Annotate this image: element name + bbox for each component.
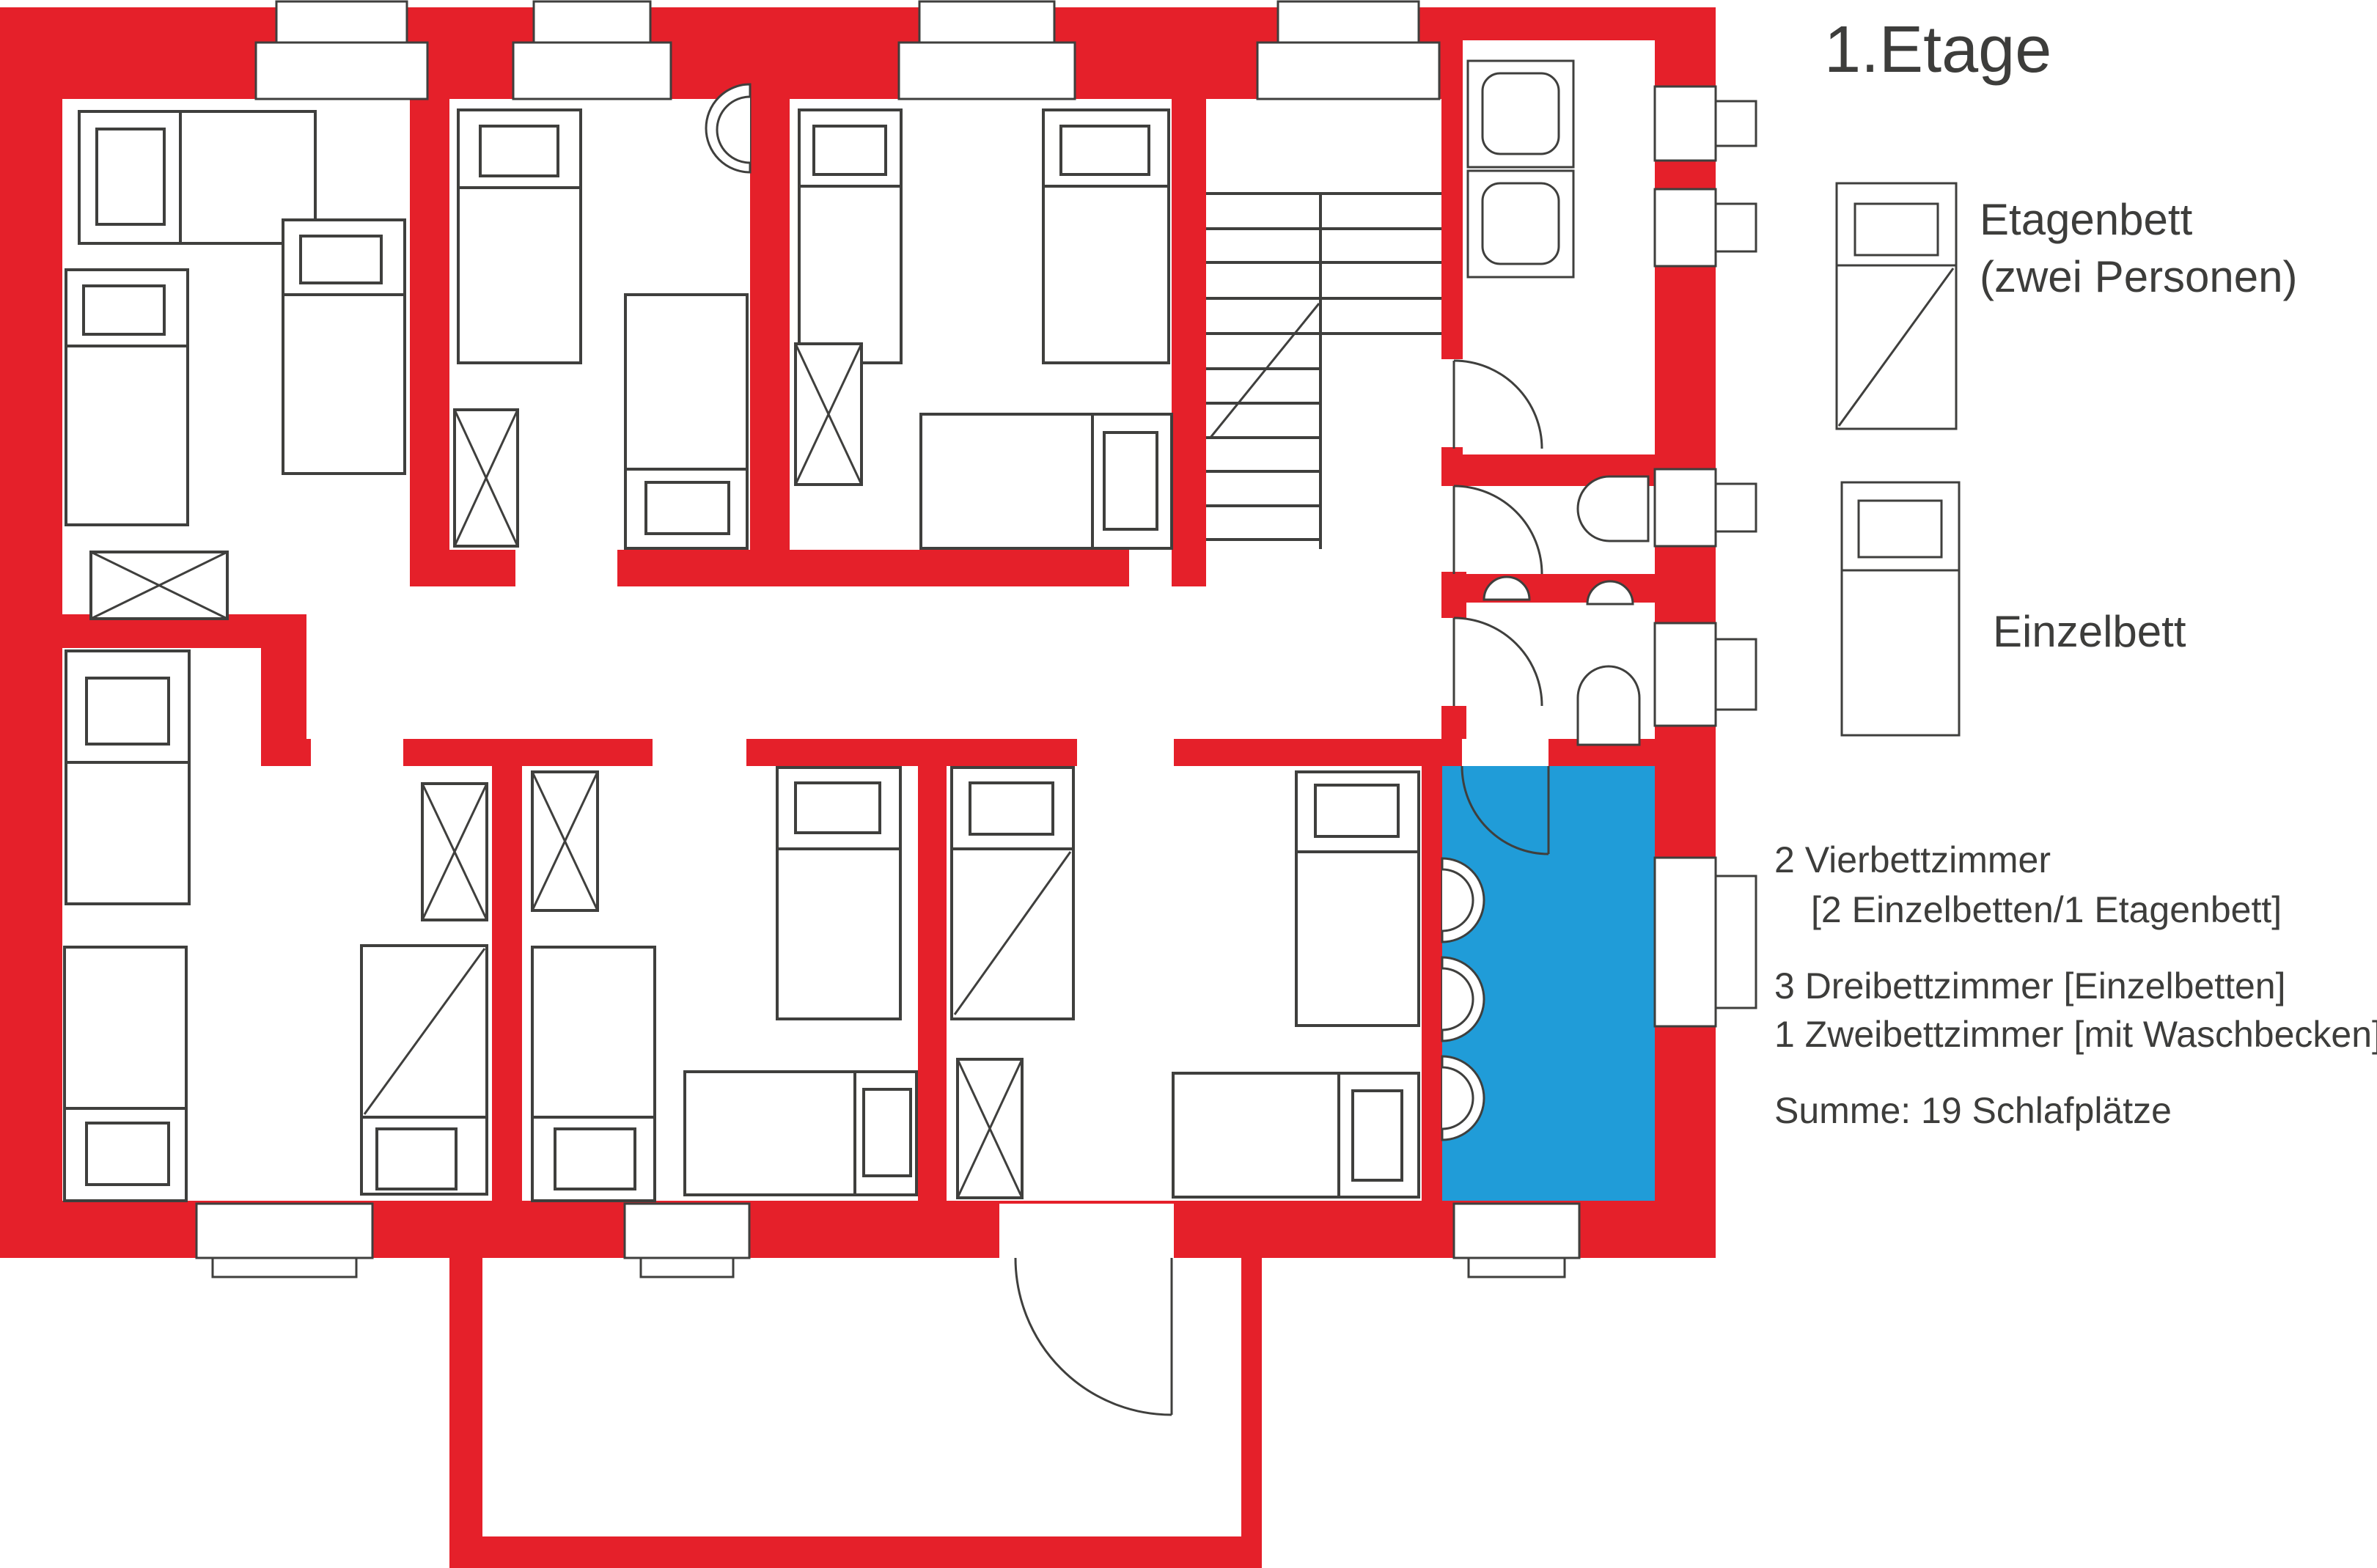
bunk-bed-icon: [361, 946, 487, 1194]
page-title: 1.Etage: [1824, 13, 2051, 87]
extension-right-wall: [1241, 1258, 1262, 1568]
single-bed-icon: [921, 414, 1172, 548]
door-opening-wc2: [1441, 618, 1469, 706]
single-bed-icon: [1842, 482, 1959, 735]
extension-bottom-wall: [449, 1536, 1262, 1568]
floor-plan: 1.Etage Etagenbett (zwei Personen) Einze…: [0, 0, 2377, 1568]
wardrobe-icon: [422, 784, 487, 920]
window-wc1: [1655, 469, 1756, 546]
floor-plan-page: 1.Etage Etagenbett (zwei Personen) Einze…: [0, 0, 2377, 1568]
bunk-bed-icon: [952, 768, 1073, 1019]
legend-etagenbett-label: Etagenbett: [1980, 195, 2193, 244]
info-zweibettzimmer: 1 Zweibettzimmer [mit Waschbecken]: [1774, 1014, 2377, 1055]
window-sinkroom-1: [1655, 87, 1756, 161]
single-bed-icon: [532, 947, 655, 1201]
toilet-icon: [1578, 666, 1639, 745]
extension-left-wall: [449, 1258, 482, 1568]
wardrobe-icon: [532, 772, 598, 910]
window-washroom: [1655, 858, 1756, 1026]
info-summe: Summe: 19 Schlafplätze: [1774, 1090, 2172, 1131]
single-bed-icon: [625, 295, 747, 548]
window-t3: [899, 1, 1075, 99]
corridor-floor: [403, 586, 1441, 739]
bunk-bed-icon: [1837, 183, 1956, 429]
single-bed-icon: [799, 110, 901, 363]
window-t2: [513, 1, 671, 99]
window-b1: [196, 1204, 372, 1277]
info-vierbettzimmer: 2 Vierbettzimmer: [1774, 839, 2051, 880]
door-opening-b4: [1077, 739, 1174, 766]
single-bed-icon: [1173, 1073, 1419, 1197]
room-t1-passage: [306, 544, 403, 739]
window-washroom-bottom: [1454, 1204, 1579, 1277]
legend: Etagenbett (zwei Personen) Einzelbett: [1837, 183, 2298, 735]
door-opening-b3: [653, 739, 746, 766]
single-bed-icon: [79, 111, 315, 243]
wardrobe-icon: [91, 552, 227, 619]
door-opening-t3: [1129, 550, 1172, 586]
door-opening-b1: [311, 739, 403, 766]
single-bed-icon: [1296, 772, 1419, 1026]
door-opening-t2: [515, 550, 617, 586]
info-dreibettzimmer: 3 Dreibettzimmer [Einzelbetten]: [1774, 965, 2286, 1006]
legend-einzelbett-label: Einzelbett: [1993, 607, 2186, 656]
window-t1: [256, 1, 427, 99]
single-bed-icon: [458, 110, 581, 363]
washbasin-icon: [1468, 61, 1573, 167]
door-opening-washroom: [1462, 739, 1548, 766]
window-stairwell: [1257, 1, 1439, 99]
wardrobe-icon: [958, 1059, 1022, 1198]
door-opening-wc1: [1441, 486, 1469, 572]
door-opening-extension: [999, 1204, 1174, 1258]
summary-block: 2 Vierbettzimmer [2 Einzelbetten/1 Etage…: [1774, 839, 2377, 1131]
window-sinkroom-2: [1655, 189, 1756, 266]
single-bed-icon: [65, 947, 186, 1201]
washbasin-icon: [1468, 171, 1573, 277]
single-bed-icon: [777, 768, 900, 1019]
window-b3: [625, 1204, 749, 1277]
toilet-icon: [1578, 476, 1648, 541]
single-bed-icon: [283, 220, 405, 474]
wardrobe-icon: [455, 410, 518, 546]
window-wc2: [1655, 623, 1756, 726]
wardrobe-icon: [796, 344, 861, 485]
single-bed-icon: [685, 1072, 916, 1195]
extension-floor: [482, 1258, 1241, 1536]
legend-etagenbett-sublabel: (zwei Personen): [1980, 252, 2298, 301]
single-bed-icon: [66, 270, 188, 525]
single-bed-icon: [1043, 110, 1169, 363]
info-vierbettzimmer-detail: [2 Einzelbetten/1 Etagenbett]: [1811, 889, 2282, 930]
single-bed-icon: [66, 651, 189, 904]
